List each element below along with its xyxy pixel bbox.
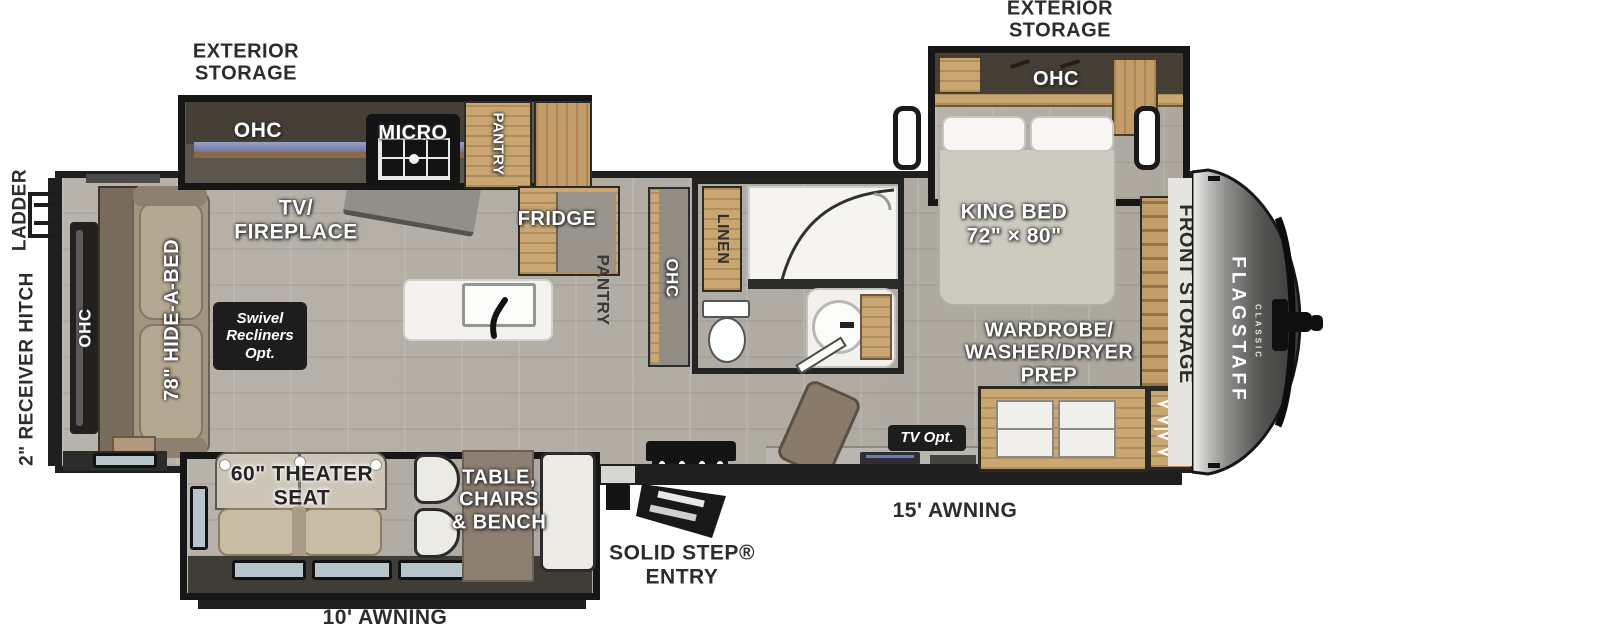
linen-label: LINEN	[713, 214, 731, 265]
swivel-recliners-box: Swivel Recliners Opt.	[213, 302, 307, 370]
hall-ohc-label: OHC	[662, 258, 681, 297]
entry-step-mount	[606, 484, 630, 510]
brand-logo: FLAGSTAFF	[1227, 256, 1248, 404]
ladder-label: LADDER	[9, 169, 30, 251]
awning-10-label: 10' AWNING	[323, 606, 448, 630]
fridge-label: FRIDGE	[518, 208, 597, 230]
king-bed-pillow	[1030, 116, 1114, 152]
tv-fireplace-label: TV/ FIREPLACE	[234, 196, 358, 243]
front-storage-slats	[1140, 196, 1170, 388]
rear-bottom-window	[93, 453, 157, 468]
hitch-ball	[1310, 315, 1323, 331]
receiver-hitch-label: 2" RECEIVER HITCH	[16, 272, 37, 466]
hall-ohc-cabinet-edge	[651, 190, 659, 364]
slideout-side-window	[190, 486, 208, 550]
rear-ohc-label: OHC	[75, 308, 94, 347]
bedroom-window-left	[893, 106, 921, 170]
wardrobe-label: WARDROBE/ WASHER/DRYER PREP	[965, 319, 1134, 386]
dinette-bench	[540, 452, 596, 572]
theater-cushion	[302, 508, 382, 556]
toilet-tank	[702, 300, 750, 318]
hitch-arm	[1286, 312, 1312, 332]
bedroom-cabinet-left	[938, 56, 982, 94]
theater-seat-label: 60" THEATER SEAT	[231, 462, 373, 509]
king-bed-label: KING BED 72" × 80"	[961, 200, 1068, 247]
dresser-drawer-seam	[1060, 428, 1114, 430]
shower-glass-icon	[748, 186, 898, 284]
king-bed-pillow	[942, 116, 1026, 152]
tv-opt-box: TV Opt.	[888, 425, 966, 451]
hall-pantry-label: PANTRY	[593, 255, 612, 326]
entry-opening	[601, 466, 635, 483]
hide-a-bed-label: 78" HIDE-A-BED	[161, 239, 183, 401]
theater-console	[292, 506, 306, 556]
ladder-icon-rung	[34, 221, 58, 225]
desk-keyboard	[930, 455, 976, 464]
bedroom-window-right	[1134, 106, 1160, 170]
island-faucet-icon	[486, 296, 512, 340]
slideout-window	[312, 560, 392, 580]
ladder-icon	[28, 192, 60, 238]
kitchen-pantry-label: PANTRY	[489, 113, 506, 176]
bedroom-ohc-label: OHC	[1033, 68, 1079, 90]
micro-label: MICRO	[378, 122, 447, 144]
solid-step-label: SOLID STEP® ENTRY	[609, 541, 755, 588]
brand-sub-logo: CLASSIC	[1253, 304, 1262, 360]
griddle	[646, 441, 736, 461]
entry-steps-icon	[636, 482, 730, 540]
vanity-faucet	[840, 322, 854, 328]
exterior-storage-right-label: EXTERIOR STORAGE	[1007, 0, 1113, 42]
floorplan: LADDER 2" RECEIVER HITCH OHC 78" HIDE-A-…	[0, 0, 1600, 631]
ladder-icon-rung	[34, 203, 58, 207]
toilet-bowl	[708, 317, 746, 363]
exterior-storage-left-label: EXTERIOR STORAGE	[193, 41, 299, 86]
kitchen-ohc-label: OHC	[234, 119, 282, 143]
dinette-label: TABLE, CHAIRS & BENCH	[452, 466, 547, 533]
kitchen-cabinet-end	[534, 101, 592, 189]
desk-tablet-screen	[866, 455, 914, 458]
dresser-drawer-seam	[998, 428, 1052, 430]
awning-15-label: 15' AWNING	[893, 499, 1018, 523]
theater-cushion	[218, 508, 298, 556]
theater-cupholder	[219, 459, 231, 471]
slideout-window	[232, 560, 306, 580]
stove-burner	[409, 154, 419, 164]
rear-top-window	[86, 174, 160, 183]
vanity-shelf	[860, 294, 892, 360]
